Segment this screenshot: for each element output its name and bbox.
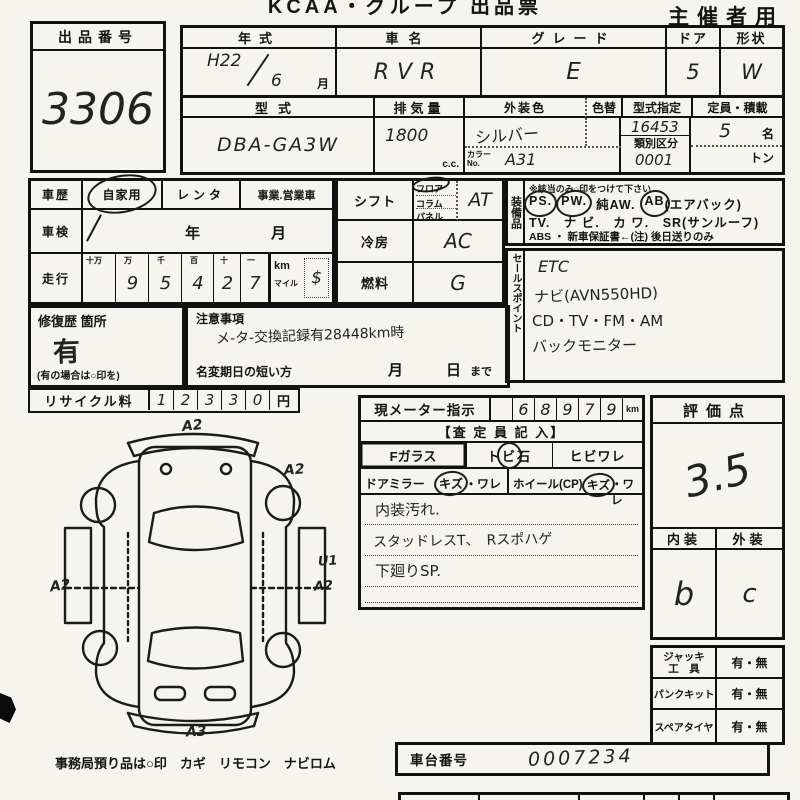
wheel-scratch: キズ bbox=[587, 477, 610, 493]
rear-right-wheel bbox=[266, 633, 300, 667]
crack-option: ヒビワレ bbox=[552, 443, 642, 469]
color-cell: シルバー カラーNo. A31 bbox=[465, 118, 621, 172]
car-body bbox=[139, 447, 251, 725]
sales-line: バックモニター bbox=[532, 334, 637, 357]
displacement-value: 1800 bbox=[385, 126, 428, 146]
name-change-made: まで bbox=[470, 363, 492, 379]
mileage-col-label: 一 bbox=[247, 255, 255, 266]
grade-value: E bbox=[482, 49, 667, 98]
spec-table: 年式 車名 グレード ドア 形状 H22 6 月 RVR E 5 W 型式 排気… bbox=[180, 25, 785, 175]
recycle-digit: 2 bbox=[174, 390, 198, 410]
front-bumper bbox=[128, 434, 258, 443]
jack-tools-label: ジャッキ 工 具 bbox=[653, 648, 717, 679]
meter-digit: 6 bbox=[513, 398, 535, 422]
door-header: ドア bbox=[667, 28, 721, 49]
table-divider bbox=[713, 795, 715, 800]
accessories-box: ジャッキ 工 具 有・無 パンクキット 有・無 スペアタイヤ 有・無 bbox=[650, 645, 785, 745]
mileage-col-label: 千 bbox=[157, 255, 165, 266]
recycle-digit: 3 bbox=[222, 390, 246, 410]
assessor-note: 下廻りSP. bbox=[375, 560, 441, 581]
jack-tools-value: 有・無 bbox=[717, 648, 782, 679]
damage-mark-left-side: A2 bbox=[49, 577, 72, 596]
door-mirror-crack: ・ワレ bbox=[465, 475, 501, 492]
left-rocker-strip bbox=[65, 528, 91, 623]
mileage-unit-cell: km マイル bbox=[269, 254, 301, 302]
mileage-mile-unit: マイル bbox=[274, 278, 298, 289]
rear-bumper bbox=[128, 713, 258, 721]
table-divider bbox=[678, 795, 680, 800]
damage-mark-front: A2 bbox=[181, 417, 203, 435]
lot-number-value: 3306 bbox=[33, 64, 163, 154]
auction-sheet: KCAA・グループ 出品票 主催者用 出品番号 3306 年式 車名 グレード … bbox=[0, 0, 800, 800]
color-value: シルバー bbox=[474, 120, 540, 148]
mileage-col-label: 万 bbox=[124, 255, 132, 266]
sheet-title: KCAA・グループ 出品票 bbox=[245, 0, 565, 19]
shift-label: シフト bbox=[338, 181, 414, 221]
equipment-aw: 純AW. bbox=[596, 194, 635, 213]
classification-value: 0001 bbox=[635, 151, 673, 169]
caution-label: 注意事項 bbox=[196, 310, 244, 327]
name-change-month: 月 bbox=[388, 359, 403, 380]
classification-label: 類別区分 bbox=[621, 135, 691, 149]
shape-value: W bbox=[721, 49, 782, 98]
mileage-col-100k: 十万 bbox=[83, 254, 116, 302]
exterior-header: 外装 bbox=[717, 527, 782, 550]
left-flank bbox=[96, 461, 139, 707]
right-rocker-strip bbox=[299, 528, 325, 623]
year-cell: H22 6 月 bbox=[183, 49, 337, 98]
color-no-subrow: カラーNo. A31 bbox=[465, 146, 621, 172]
capacity-header: 定員・積載 bbox=[691, 98, 782, 118]
mileage-digit: 9 bbox=[116, 266, 149, 300]
score-value: 3.5 bbox=[642, 410, 792, 541]
spare-tire-label: スペアタイヤ bbox=[653, 710, 717, 742]
puncture-kit-label: パンクキット bbox=[653, 679, 717, 710]
interior-grade: b bbox=[653, 550, 717, 637]
mileage-col-1k: 千 5 bbox=[149, 254, 182, 302]
assessor-header: 【査 定 員 記 入】 bbox=[361, 422, 642, 443]
bottom-partial-table bbox=[398, 792, 790, 800]
chassis-value: 0007234 bbox=[528, 745, 634, 771]
year-era-value: H22 bbox=[207, 51, 241, 71]
model-header: 型式 bbox=[183, 98, 375, 118]
washer-nozzle bbox=[221, 464, 231, 474]
equipment-line3: ABS ・ 新車保証書←(注) 後日送りのみ bbox=[529, 229, 714, 244]
history-label: 車歴 bbox=[31, 181, 83, 210]
meter-digit: 9 bbox=[601, 398, 623, 422]
rear-light bbox=[155, 687, 185, 700]
meter-digit: 9 bbox=[557, 398, 579, 422]
mileage-col-1: 一 7 bbox=[241, 254, 269, 302]
hand-circle-floor bbox=[411, 174, 451, 194]
mileage-mark: $ bbox=[304, 258, 329, 298]
windshield bbox=[149, 507, 243, 551]
front-glass-label: Fガラス bbox=[361, 443, 467, 469]
recycle-label: リサイクル料 bbox=[30, 390, 150, 410]
door-value: 5 bbox=[667, 49, 721, 98]
mileage-label: 走行 bbox=[31, 254, 83, 302]
wheel-label: ホイール(CP) bbox=[513, 476, 583, 492]
displacement-unit: c.c. bbox=[442, 159, 459, 170]
mileage-km-unit: km bbox=[274, 260, 290, 272]
equipment-pw: PW. bbox=[561, 194, 587, 213]
inspection-year-unit: 年 bbox=[185, 222, 200, 243]
capacity-divider bbox=[691, 145, 782, 147]
assessor-box: 現メーター指示 6 8 9 7 9 km 【査 定 員 記 入】 Fガラス ト … bbox=[358, 395, 645, 610]
door-mirror-scratch: キズ bbox=[439, 475, 463, 492]
mileage-digit: 4 bbox=[182, 266, 214, 300]
equipment-ab: AB bbox=[645, 194, 665, 213]
door-mirror-cell: ドアミラー キズ ・ワレ bbox=[361, 469, 509, 495]
office-deposit-note: 事務局預り品は○印 カギ リモコン ナビロム bbox=[55, 753, 336, 772]
inspection-cell: 年 月 bbox=[83, 210, 332, 254]
mileage-digit: 7 bbox=[241, 266, 269, 300]
cooling-label: 冷房 bbox=[338, 221, 414, 263]
caution-text: メ-タ-交換記録有28448km時 bbox=[216, 322, 405, 349]
type-designation-header: 型式指定 bbox=[621, 98, 691, 118]
recycle-digit: 0 bbox=[246, 390, 270, 410]
lot-number-box: 出品番号 3306 bbox=[30, 21, 166, 173]
sales-line: ETC bbox=[538, 257, 569, 276]
year-slash-mark bbox=[247, 54, 270, 87]
fuel-label: 燃料 bbox=[338, 263, 414, 302]
mileage-col-label: 百 bbox=[190, 255, 198, 266]
damage-mark-right-side: A2 bbox=[314, 578, 334, 594]
recycle-box: リサイクル料 1 2 3 3 0 円 bbox=[28, 388, 300, 413]
wheel-cell: ホイール(CP) キズ ・ワレ bbox=[509, 469, 642, 495]
equipment-ps: PS. bbox=[529, 194, 552, 213]
capacity-value: 5 bbox=[719, 120, 731, 142]
mileage-col-10: 十 2 bbox=[214, 254, 241, 302]
color-no-label: カラーNo. bbox=[467, 150, 493, 168]
table-divider bbox=[478, 795, 480, 800]
note-rule bbox=[365, 602, 638, 603]
front-bumper-inner bbox=[134, 448, 254, 456]
door-mirror-label: ドアミラー bbox=[365, 475, 425, 492]
recycle-digit: 3 bbox=[198, 390, 222, 410]
equipment-line1: PS. PW. 純AW. AB (エアバック) bbox=[529, 194, 742, 213]
stone-chip-option: ト ビ 石 bbox=[467, 443, 552, 469]
equipment-box: 装備品 ※該当のみ○印をつけて下さい PS. PW. 純AW. AB (エアバッ… bbox=[505, 178, 785, 246]
name-value: RVR bbox=[337, 49, 482, 98]
repair-note: (有の場合は○印を) bbox=[37, 367, 120, 382]
history-table: 車歴 自家用 レンタ 事業.営業車 車検 年 月 走行 十万 万 9 千 5 百… bbox=[28, 178, 335, 305]
mileage-col-label: 十 bbox=[220, 255, 228, 266]
mileage-mark-cell: $ bbox=[301, 254, 332, 302]
damage-mark-right-upper: U1 bbox=[318, 553, 339, 569]
table-divider bbox=[643, 795, 645, 800]
grade-header: グレード bbox=[482, 28, 667, 49]
history-rental-option: レンタ bbox=[161, 181, 239, 210]
note-rule bbox=[365, 586, 638, 587]
meter-digit bbox=[491, 398, 513, 422]
meter-label: 現メーター指示 bbox=[361, 398, 491, 422]
inspection-month-unit: 月 bbox=[271, 222, 286, 243]
damage-mark-rear: A3 bbox=[186, 723, 207, 740]
fuel-value: G bbox=[414, 263, 502, 302]
type-designation-value: 16453 bbox=[631, 118, 679, 136]
mileage-col-10k: 万 9 bbox=[116, 254, 149, 302]
sales-line: CD・TV・FM・AM bbox=[532, 310, 663, 331]
mileage-digit bbox=[83, 266, 116, 300]
note-rule bbox=[365, 555, 638, 556]
right-flank bbox=[251, 461, 294, 707]
table-divider bbox=[578, 795, 580, 800]
damage-mark-right-front: A2 bbox=[283, 461, 305, 478]
assessor-note: スタッドレスT、 Rスポハゲ bbox=[373, 528, 553, 551]
model-value: DBA-GA3W bbox=[183, 118, 375, 172]
year-month-suffix: 月 bbox=[317, 75, 329, 92]
capacity-unit: 名 bbox=[762, 125, 774, 142]
wheel-crack: ・ワレ bbox=[611, 476, 642, 508]
exterior-grade: c bbox=[717, 550, 782, 637]
repair-box: 修復歴 箇所 有 (有の場合は○印を) bbox=[28, 305, 185, 388]
meter-unit: km bbox=[623, 398, 642, 422]
washer-nozzle bbox=[161, 464, 171, 474]
ink-blob bbox=[0, 693, 16, 723]
spare-tire-value: 有・無 bbox=[717, 710, 782, 742]
color-change-divider bbox=[585, 118, 587, 146]
inspection-label: 車検 bbox=[31, 210, 83, 254]
lot-number-label: 出品番号 bbox=[33, 24, 163, 51]
shift-value: AT bbox=[458, 181, 502, 221]
equipment-label: 装備品 bbox=[508, 181, 525, 243]
mileage-col-100: 百 4 bbox=[182, 254, 214, 302]
displacement-cell: 1800 c.c. bbox=[375, 118, 465, 172]
chassis-box: 車台番号 0007234 bbox=[395, 742, 770, 776]
meter-digit: 7 bbox=[579, 398, 601, 422]
assessor-note: 内装汚れ. bbox=[375, 498, 440, 520]
shape-header: 形状 bbox=[721, 28, 782, 49]
drivetrain-table: シフト フロア コラム パネル AT 冷房 AC 燃料 G bbox=[335, 178, 505, 305]
color-no-value: A31 bbox=[505, 150, 536, 169]
note-rule bbox=[365, 524, 638, 525]
name-header: 車名 bbox=[337, 28, 482, 49]
sales-points-label: セールスポイント bbox=[508, 251, 525, 380]
mileage-col-label: 十万 bbox=[86, 255, 102, 266]
rear-light bbox=[205, 687, 235, 700]
color-change-header: 色替 bbox=[585, 98, 621, 118]
sales-line: ナビ(AVN550HD) bbox=[534, 282, 659, 307]
caution-box: 注意事項 メ-タ-交換記録有28448km時 名変期日の短い方 月 日 まで bbox=[185, 305, 510, 388]
repair-label: 修復歴 箇所 bbox=[38, 311, 107, 330]
type-designation-cell: 16453 類別区分 0001 bbox=[621, 118, 691, 172]
equipment-ab-note: (エアバック) bbox=[665, 194, 742, 213]
repair-value: 有 bbox=[52, 330, 80, 370]
ton-unit: トン bbox=[750, 149, 774, 166]
color-header: 外装色 bbox=[465, 98, 585, 118]
mileage-digit: 5 bbox=[149, 266, 182, 300]
name-change-label: 名変期日の短い方 bbox=[196, 363, 292, 380]
puncture-kit-value: 有・無 bbox=[717, 679, 782, 710]
shift-options: フロア コラム パネル bbox=[414, 181, 458, 221]
car-damage-diagram bbox=[42, 415, 354, 740]
recycle-unit: 円 bbox=[270, 390, 297, 410]
rear-window bbox=[148, 628, 243, 669]
year-month-value: 6 bbox=[271, 71, 282, 91]
chassis-label: 車台番号 bbox=[398, 745, 480, 773]
stone-chip-circled: ビ bbox=[502, 446, 517, 465]
interior-header: 内装 bbox=[653, 527, 717, 550]
recycle-digit: 1 bbox=[150, 390, 174, 410]
history-business-option: 事業.営業車 bbox=[239, 181, 332, 210]
meter-digit: 8 bbox=[535, 398, 557, 422]
year-header: 年式 bbox=[183, 28, 337, 49]
sales-points-box: セールスポイント ETC ナビ(AVN550HD) CD・TV・FM・AM バッ… bbox=[505, 248, 785, 383]
displacement-header: 排気量 bbox=[375, 98, 465, 118]
score-box: 評価点 3.5 内装 外装 b c bbox=[650, 395, 785, 640]
capacity-cell: 5 名 トン bbox=[691, 118, 782, 172]
mileage-digit: 2 bbox=[214, 266, 241, 300]
cooling-value: AC bbox=[414, 221, 502, 263]
name-change-day: 日 bbox=[446, 359, 461, 380]
